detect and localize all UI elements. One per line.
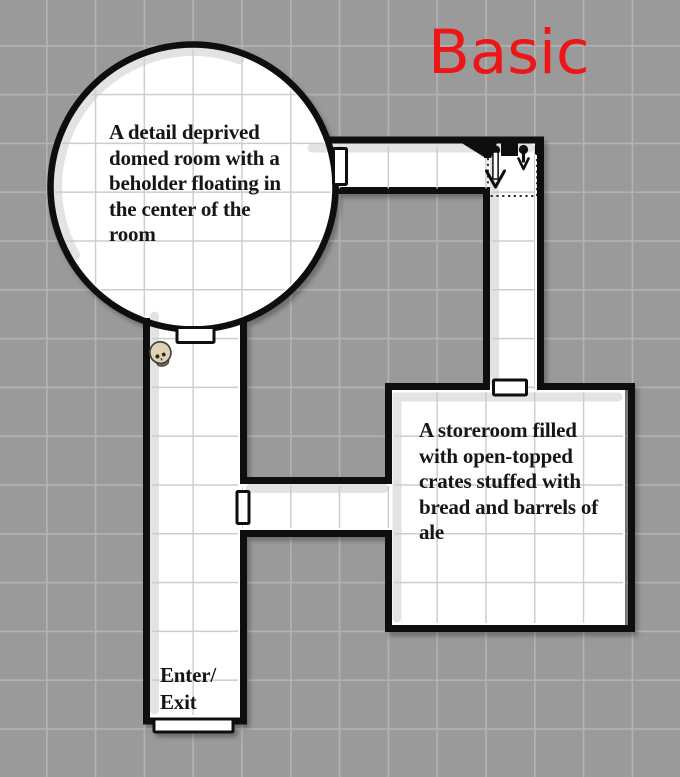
enter-exit-label: Enter/ Exit: [160, 662, 250, 715]
door-storeroom-north: [494, 380, 527, 395]
door-domed-room-south: [177, 328, 214, 343]
door-entrance: [154, 719, 233, 732]
door-domed-room-east: [334, 149, 347, 185]
storeroom-description: A storeroom filled with open-topped crat…: [419, 418, 629, 546]
dungeon-map-canvas: Basic A detail deprived domed room with …: [0, 0, 680, 777]
door-middle-corridor: [237, 492, 249, 524]
dungeon-map-svg: [0, 0, 680, 777]
domed-room-description: A detail deprived domed room with a beho…: [109, 120, 309, 248]
map-title: Basic: [428, 22, 590, 83]
